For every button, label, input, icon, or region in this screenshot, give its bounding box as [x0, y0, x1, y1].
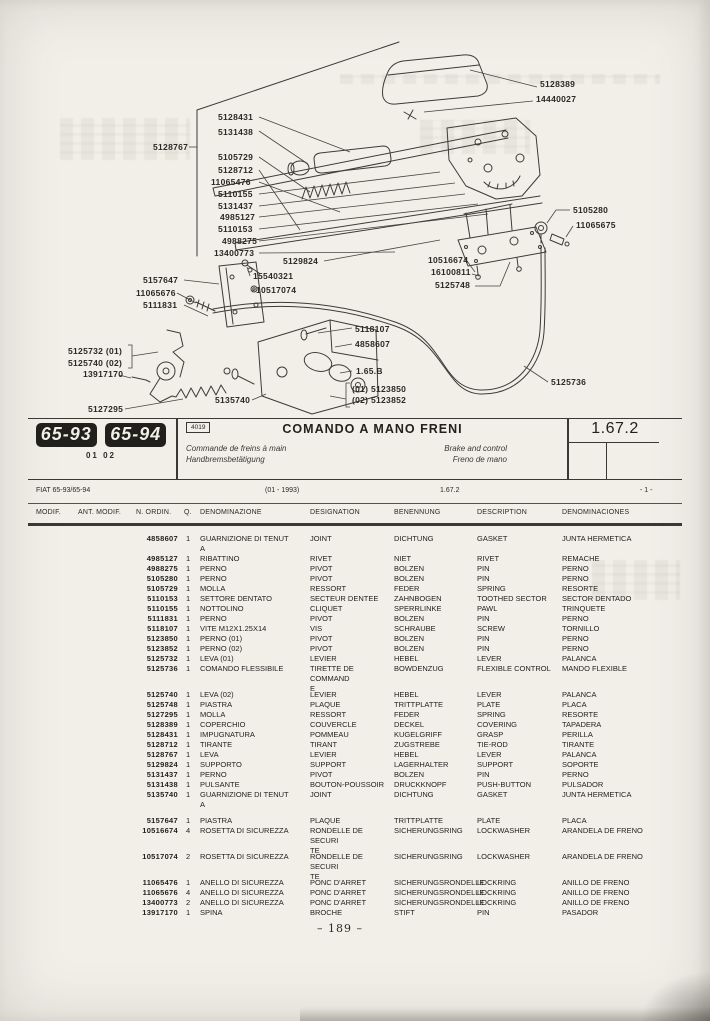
cell-q: 4	[186, 826, 200, 836]
table-row: 51287121TIRANTETIRANTZUGSTREBETIE-RODTIR…	[28, 740, 682, 750]
part-number-label: 5125748	[435, 280, 470, 290]
cell-fr: PIVOT	[310, 770, 390, 780]
cell-n: 5105280	[88, 574, 178, 584]
cell-fr: PIVOT	[310, 614, 390, 624]
part-number-label: 5135740	[215, 395, 250, 405]
part-number-label: 5125732 (01)	[68, 346, 122, 356]
cell-q: 1	[186, 690, 200, 700]
cell-q: 1	[186, 760, 200, 770]
cell-it: LEVA	[200, 750, 306, 760]
cell-es: RESORTE	[562, 710, 682, 720]
cell-de: HEBEL	[394, 750, 474, 760]
cell-en: PIN	[477, 770, 559, 780]
section-box-line	[569, 442, 659, 443]
cell-n: 4858607	[88, 534, 178, 544]
subtitle-en: Brake and control	[444, 443, 507, 454]
cell-fr: LEVIER	[310, 750, 390, 760]
cell-n: 5125748	[88, 700, 178, 710]
table-row: 51052801PERNOPIVOTBOLZENPINPERNO	[28, 574, 682, 584]
table-row: 139171701SPINABROCHESTIFTPINPASADOR	[28, 908, 682, 918]
table-row: 51298241SUPPORTOSUPPORTLAGERHALTERSUPPOR…	[28, 760, 682, 770]
cell-q: 1	[186, 624, 200, 634]
col-modif: MODIF.	[36, 509, 61, 516]
cell-es: PERNO	[562, 614, 682, 624]
cell-q: 1	[186, 710, 200, 720]
cell-en: PIN	[477, 614, 559, 624]
cell-de: SICHERUNGSRING	[394, 826, 474, 836]
cell-it: GUARNIZIONE DI TENUT A	[200, 790, 306, 810]
cell-de: NIET	[394, 554, 474, 564]
cell-n: 5131437	[88, 770, 178, 780]
cell-es: PASADOR	[562, 908, 682, 918]
section-box-line	[606, 442, 607, 479]
col-denominazione: DENOMINAZIONE	[200, 509, 262, 516]
cell-fr: SECTEUR DENTEE	[310, 594, 390, 604]
cell-fr: LEVIER	[310, 690, 390, 700]
cell-de: DICHTUNG	[394, 534, 474, 544]
cell-en: PIN	[477, 564, 559, 574]
cell-en: LOCKRING	[477, 888, 559, 898]
cell-it: PERNO (02)	[200, 644, 306, 654]
part-number-label: 5128767	[153, 142, 188, 152]
scan-corner-artifact	[640, 971, 710, 1021]
part-number-label: 1.65.B	[356, 366, 383, 376]
cell-it: MOLLA	[200, 710, 306, 720]
cell-fr: PLAQUE	[310, 816, 390, 826]
cell-en: PIN	[477, 574, 559, 584]
cell-n: 5128712	[88, 740, 178, 750]
cell-q: 1	[186, 594, 200, 604]
table-row: 49851271RIBATTINORIVETNIETRIVETREMACHE	[28, 554, 682, 564]
cell-it: COMANDO FLESSIBILE	[200, 664, 306, 674]
table-rule-header	[28, 523, 682, 526]
cell-it: SETTORE DENTATO	[200, 594, 306, 604]
scan-edge-artifact	[300, 1007, 710, 1021]
cell-it: VITE M12X1.25X14	[200, 624, 306, 634]
cell-it: PULSANTE	[200, 780, 306, 790]
cell-q: 1	[186, 604, 200, 614]
cell-es: ARANDELA DE FRENO	[562, 852, 682, 862]
cell-q: 1	[186, 664, 200, 674]
part-number-label: 5128431	[218, 112, 253, 122]
table-row: 48586071GUARNIZIONE DI TENUT AJOINTDICHT…	[28, 534, 682, 554]
cell-q: 1	[186, 574, 200, 584]
cell-it: ROSETTA DI SICUREZZA	[200, 826, 306, 836]
meta-date-range: (01 - 1993)	[265, 487, 299, 494]
cell-n: 13400773	[88, 898, 178, 908]
table-row: 51287671LEVALEVIERHEBELLEVERPALANCA	[28, 750, 682, 760]
cell-it: PERNO	[200, 614, 306, 624]
col-benennung: BENENNUNG	[394, 509, 441, 516]
col-ant-modif: ANT. MODIF.	[78, 509, 121, 516]
cell-es: TORNILLO	[562, 624, 682, 634]
cell-de: ZAHNBOGEN	[394, 594, 474, 604]
cell-it: ANELLO DI SICUREZZA	[200, 878, 306, 888]
model-badge-65-93: 65-93	[36, 423, 97, 447]
cell-q: 1	[186, 770, 200, 780]
cell-de: KUGELGRIFF	[394, 730, 474, 740]
cell-fr: PIVOT	[310, 564, 390, 574]
cell-en: PUSH-BUTTON	[477, 780, 559, 790]
cell-en: LOCKRING	[477, 878, 559, 888]
cell-fr: PIVOT	[310, 644, 390, 654]
part-number-label: 10517074	[256, 285, 296, 295]
cell-es: PULSADOR	[562, 780, 682, 790]
cell-en: PLATE	[477, 700, 559, 710]
part-number-label: 5129824	[283, 256, 318, 266]
cell-de: SICHERUNGSRONDELLE	[394, 878, 474, 888]
cell-q: 1	[186, 634, 200, 644]
cell-q: 4	[186, 888, 200, 898]
part-number-label: 4985127	[220, 212, 255, 222]
cell-n: 5111831	[88, 614, 178, 624]
cell-n: 5123850	[88, 634, 178, 644]
col-q: Q.	[184, 509, 192, 516]
cell-en: PIN	[477, 634, 559, 644]
part-number-label: 5127295	[88, 404, 123, 414]
cell-n: 5125732	[88, 654, 178, 664]
cell-q: 1	[186, 564, 200, 574]
meta-model: FIAT 65-93/65-94	[36, 487, 90, 494]
cell-en: RIVET	[477, 554, 559, 564]
cell-q: 2	[186, 852, 200, 862]
part-number-label: 5125736	[551, 377, 586, 387]
cell-de: DICHTUNG	[394, 790, 474, 800]
cell-q: 1	[186, 878, 200, 888]
cell-en: LOCKWASHER	[477, 852, 559, 862]
cell-en: SPRING	[477, 710, 559, 720]
cell-en: PIN	[477, 644, 559, 654]
cell-it: PERNO	[200, 770, 306, 780]
cell-q: 1	[186, 644, 200, 654]
cell-es: PERNO	[562, 770, 682, 780]
parts-table-body: 48586071GUARNIZIONE DI TENUT AJOINTDICHT…	[28, 534, 682, 918]
cell-es: TRINQUETE	[562, 604, 682, 614]
catalog-page: 5128389144400275128431513143851287675105…	[0, 0, 710, 1021]
part-number-label: 14440027	[536, 94, 576, 104]
cell-es: TIRANTE	[562, 740, 682, 750]
table-row: 51272951MOLLARESSORTFEDERSPRINGRESORTE	[28, 710, 682, 720]
cell-de: BOLZEN	[394, 644, 474, 654]
cell-en: LEVER	[477, 690, 559, 700]
meta-sheet-number: - 1 -	[640, 487, 652, 494]
table-row: 51257481PIASTRAPLAQUETRITTPLATTEPLATEPLA…	[28, 700, 682, 710]
cell-it: SPINA	[200, 908, 306, 918]
cell-fr: TIRANT	[310, 740, 390, 750]
part-number-label: 11065676	[136, 288, 176, 298]
cell-n: 10517074	[88, 852, 178, 862]
cell-de: FEDER	[394, 710, 474, 720]
cell-n: 5105729	[88, 584, 178, 594]
cell-it: PIASTRA	[200, 700, 306, 710]
part-number-label: 5128712	[218, 165, 253, 175]
figure-title: COMANDO A MANO FRENI	[178, 422, 567, 436]
figure-header-band: 65-93 65-94 01 02 4019 COMANDO A MANO FR…	[28, 418, 682, 480]
table-row: 51257361COMANDO FLESSIBILETIRETTE DE COM…	[28, 664, 682, 690]
cell-de: BOLZEN	[394, 634, 474, 644]
cell-q: 1	[186, 780, 200, 790]
part-number-label: (02) 5123852	[352, 395, 406, 405]
cell-n: 5125736	[88, 664, 178, 674]
cell-en: SUPPORT	[477, 760, 559, 770]
cell-es: MANDO FLEXIBLE	[562, 664, 682, 674]
cell-fr: PIVOT	[310, 574, 390, 584]
figure-subtitle-fr-de: Commande de freins à main Handbremsbetät…	[186, 443, 287, 465]
cell-n: 4988275	[88, 564, 178, 574]
table-row: 51357401GUARNIZIONE DI TENUT AJOINTDICHT…	[28, 790, 682, 816]
cell-n: 5110153	[88, 594, 178, 604]
cell-en: GASKET	[477, 790, 559, 800]
cell-fr: POMMEAU	[310, 730, 390, 740]
subtitle-de: Handbremsbetätigung	[186, 454, 287, 465]
cell-fr: COUVERCLE	[310, 720, 390, 730]
cell-q: 1	[186, 790, 200, 800]
part-number-label: (01) 5123850	[352, 384, 406, 394]
part-number-label: 5131438	[218, 127, 253, 137]
cell-es: RESORTE	[562, 584, 682, 594]
cell-fr: BROCHE	[310, 908, 390, 918]
part-number-label: 5157647	[143, 275, 178, 285]
cell-it: GUARNIZIONE DI TENUT A	[200, 534, 306, 554]
cell-fr: JOINT	[310, 790, 390, 800]
cell-q: 1	[186, 750, 200, 760]
cell-es: PLACA	[562, 816, 682, 826]
figure-subtitle-en-es: Brake and control Freno de mano	[444, 443, 507, 465]
cell-q: 1	[186, 720, 200, 730]
table-row: 51118311PERNOPIVOTBOLZENPINPERNO	[28, 614, 682, 624]
page-number: – 189 –	[280, 922, 400, 935]
col-denominaciones: DENOMINACIONES	[562, 509, 629, 516]
part-number-label: 11065675	[576, 220, 616, 230]
variant-codes: 01 02	[28, 451, 174, 460]
cell-q: 1	[186, 730, 200, 740]
cell-n: 5123852	[88, 644, 178, 654]
cell-en: TOOTHED SECTOR	[477, 594, 559, 604]
cell-fr: RESSORT	[310, 584, 390, 594]
model-badges: 65-93 65-94	[28, 423, 174, 447]
cell-es: PERNO	[562, 574, 682, 584]
table-row: 51057291MOLLARESSORTFEDERSPRINGRESORTE	[28, 584, 682, 594]
cell-it: IMPUGNATURA	[200, 730, 306, 740]
cell-de: TRITTPLATTE	[394, 700, 474, 710]
part-number-label: 5105729	[218, 152, 253, 162]
model-badge-65-94: 65-94	[105, 423, 166, 447]
cell-de: BOLZEN	[394, 614, 474, 624]
cell-fr: JOINT	[310, 534, 390, 544]
cell-es: PLACA	[562, 700, 682, 710]
cell-de: DRUCKKNOPF	[394, 780, 474, 790]
cell-n: 5129824	[88, 760, 178, 770]
cell-it: RIBATTINO	[200, 554, 306, 564]
table-row: 51576471PIASTRAPLAQUETRITTPLATTEPLATEPLA…	[28, 816, 682, 826]
part-number-label: 13917170	[83, 369, 123, 379]
cell-n: 11065676	[88, 888, 178, 898]
table-row: 51238521PERNO (02)PIVOTBOLZENPINPERNO	[28, 644, 682, 654]
cell-es: TAPADERA	[562, 720, 682, 730]
cell-es: REMACHE	[562, 554, 682, 564]
cell-it: PIASTRA	[200, 816, 306, 826]
cell-n: 5118107	[88, 624, 178, 634]
cell-en: LEVER	[477, 750, 559, 760]
cell-fr: VIS	[310, 624, 390, 634]
part-number-label: 5118107	[355, 324, 390, 334]
cell-n: 5157647	[88, 816, 178, 826]
cell-de: SCHRAUBE	[394, 624, 474, 634]
cell-de: BOWDENZUG	[394, 664, 474, 674]
part-number-label: 5111831	[143, 300, 177, 310]
cell-fr: SUPPORT	[310, 760, 390, 770]
cell-en: FLEXIBLE CONTROL	[477, 664, 559, 674]
col-n-ordin: N. ORDIN.	[136, 509, 171, 516]
cell-de: SICHERUNGSRONDELLE	[394, 898, 474, 908]
cell-n: 5128431	[88, 730, 178, 740]
cell-es: JUNTA HERMETICA	[562, 534, 682, 544]
subtitle-fr: Commande de freins à main	[186, 443, 287, 454]
table-row: 134007732ANELLO DI SICUREZZAPONC D'ARRET…	[28, 898, 682, 908]
cell-q: 1	[186, 534, 200, 544]
cell-es: SECTOR DENTADO	[562, 594, 682, 604]
cell-es: PERNO	[562, 564, 682, 574]
cell-it: MOLLA	[200, 584, 306, 594]
subtitle-es: Freno de mano	[444, 454, 507, 465]
part-number-label: 5110155	[218, 189, 253, 199]
cell-de: SICHERUNGSRING	[394, 852, 474, 862]
table-row: 51314371PERNOPIVOTBOLZENPINPERNO	[28, 770, 682, 780]
cell-de: TRITTPLATTE	[394, 816, 474, 826]
cell-it: LEVA (02)	[200, 690, 306, 700]
cell-n: 5135740	[88, 790, 178, 800]
cell-de: HEBEL	[394, 654, 474, 664]
cell-en: LOCKWASHER	[477, 826, 559, 836]
cell-q: 1	[186, 614, 200, 624]
part-number-label: 5131437	[218, 201, 253, 211]
col-designation: DESIGNATION	[310, 509, 360, 516]
cell-it: PERNO (01)	[200, 634, 306, 644]
part-number-label: 15540321	[253, 271, 293, 281]
cell-en: SPRING	[477, 584, 559, 594]
part-number-label: 16100811	[431, 267, 471, 277]
cell-it: COPERCHIO	[200, 720, 306, 730]
exploded-parts-diagram: 5128389144400275128431513143851287675105…	[0, 0, 710, 418]
cell-es: PERNO	[562, 644, 682, 654]
cell-fr: RESSORT	[310, 710, 390, 720]
cell-it: NOTTOLINO	[200, 604, 306, 614]
table-row: 51284311IMPUGNATURAPOMMEAUKUGELGRIFFGRAS…	[28, 730, 682, 740]
part-number-label: 4988275	[222, 236, 257, 246]
cell-de: BOLZEN	[394, 564, 474, 574]
table-row: 105166744ROSETTA DI SICUREZZARONDELLE DE…	[28, 826, 682, 852]
cell-it: PERNO	[200, 574, 306, 584]
cell-fr: PLAQUE	[310, 700, 390, 710]
cell-de: FEDER	[394, 584, 474, 594]
cell-en: PIN	[477, 908, 559, 918]
cell-de: LAGERHALTER	[394, 760, 474, 770]
cell-fr: PONC D'ARRET	[310, 888, 390, 898]
cell-it: ROSETTA DI SICUREZZA	[200, 852, 306, 862]
cell-fr: PIVOT	[310, 634, 390, 644]
cell-en: GASKET	[477, 534, 559, 544]
cell-en: LOCKRING	[477, 898, 559, 908]
cell-es: PALANCA	[562, 654, 682, 664]
table-row: 51257401LEVA (02)LEVIERHEBELLEVERPALANCA	[28, 690, 682, 700]
cell-es: ANILLO DE FRENO	[562, 888, 682, 898]
part-number-label: 5110153	[218, 224, 253, 234]
cell-q: 2	[186, 898, 200, 908]
cell-q: 1	[186, 816, 200, 826]
cell-es: ARANDELA DE FRENO	[562, 826, 682, 836]
cell-it: ANELLO DI SICUREZZA	[200, 898, 306, 908]
cell-fr: BOUTON-POUSSOIR	[310, 780, 390, 790]
part-number-label: 10516674	[428, 255, 468, 265]
cell-q: 1	[186, 700, 200, 710]
part-number-label: 5128389	[540, 79, 575, 89]
cell-es: PERNO	[562, 634, 682, 644]
cell-es: PALANCA	[562, 690, 682, 700]
cell-de: BOLZEN	[394, 770, 474, 780]
table-row: 105170742ROSETTA DI SICUREZZARONDELLE DE…	[28, 852, 682, 878]
cell-de: ZUGSTREBE	[394, 740, 474, 750]
cell-en: PLATE	[477, 816, 559, 826]
table-meta-row: FIAT 65-93/65-94 (01 - 1993) 1.67.2 - 1 …	[28, 487, 682, 497]
col-description: DESCRIPTION	[477, 509, 527, 516]
section-code: 1.67.2	[569, 420, 661, 438]
table-row: 110656764ANELLO DI SICUREZZAPONC D'ARRET…	[28, 888, 682, 898]
cell-fr: PONC D'ARRET	[310, 878, 390, 888]
table-row: 51238501PERNO (01)PIVOTBOLZENPINPERNO	[28, 634, 682, 644]
cell-fr: RIVET	[310, 554, 390, 564]
cell-q: 1	[186, 554, 200, 564]
cell-es: PALANCA	[562, 750, 682, 760]
table-rule-top	[28, 503, 682, 504]
cell-n: 5110155	[88, 604, 178, 614]
cell-de: SPERRLINKE	[394, 604, 474, 614]
cell-q: 1	[186, 584, 200, 594]
cell-es: ANILLO DE FRENO	[562, 878, 682, 888]
cell-de: DECKEL	[394, 720, 474, 730]
cell-it: PERNO	[200, 564, 306, 574]
part-number-label: 4858607	[355, 339, 390, 349]
meta-section: 1.67.2	[440, 487, 459, 494]
table-row: 51101531SETTORE DENTATOSECTEUR DENTEEZAH…	[28, 594, 682, 604]
cell-es: JUNTA HERMETICA	[562, 790, 682, 800]
table-row: 51314381PULSANTEBOUTON-POUSSOIRDRUCKKNOP…	[28, 780, 682, 790]
table-row: 110654761ANELLO DI SICUREZZAPONC D'ARRET…	[28, 878, 682, 888]
cell-it: LEVA (01)	[200, 654, 306, 664]
cell-fr: PONC D'ARRET	[310, 898, 390, 908]
cell-q: 1	[186, 908, 200, 918]
cell-en: LEVER	[477, 654, 559, 664]
cell-it: TIRANTE	[200, 740, 306, 750]
part-number-label: 5125740 (02)	[68, 358, 122, 368]
cell-n: 10516674	[88, 826, 178, 836]
cell-de: BOLZEN	[394, 574, 474, 584]
cell-es: ANILLO DE FRENO	[562, 898, 682, 908]
cell-es: PERILLA	[562, 730, 682, 740]
part-number-label: 13400773	[214, 248, 254, 258]
cell-en: TIE-ROD	[477, 740, 559, 750]
cell-en: PAWL	[477, 604, 559, 614]
cell-n: 11065476	[88, 878, 178, 888]
cell-de: SICHERUNGSRONDELLE	[394, 888, 474, 898]
cell-n: 4985127	[88, 554, 178, 564]
table-row: 51283891COPERCHIOCOUVERCLEDECKELCOVERING…	[28, 720, 682, 730]
cell-de: HEBEL	[394, 690, 474, 700]
cell-n: 5125740	[88, 690, 178, 700]
cell-n: 5131438	[88, 780, 178, 790]
cell-en: SCREW	[477, 624, 559, 634]
cell-fr: LEVIER	[310, 654, 390, 664]
part-number-label: 11065476	[211, 177, 251, 187]
